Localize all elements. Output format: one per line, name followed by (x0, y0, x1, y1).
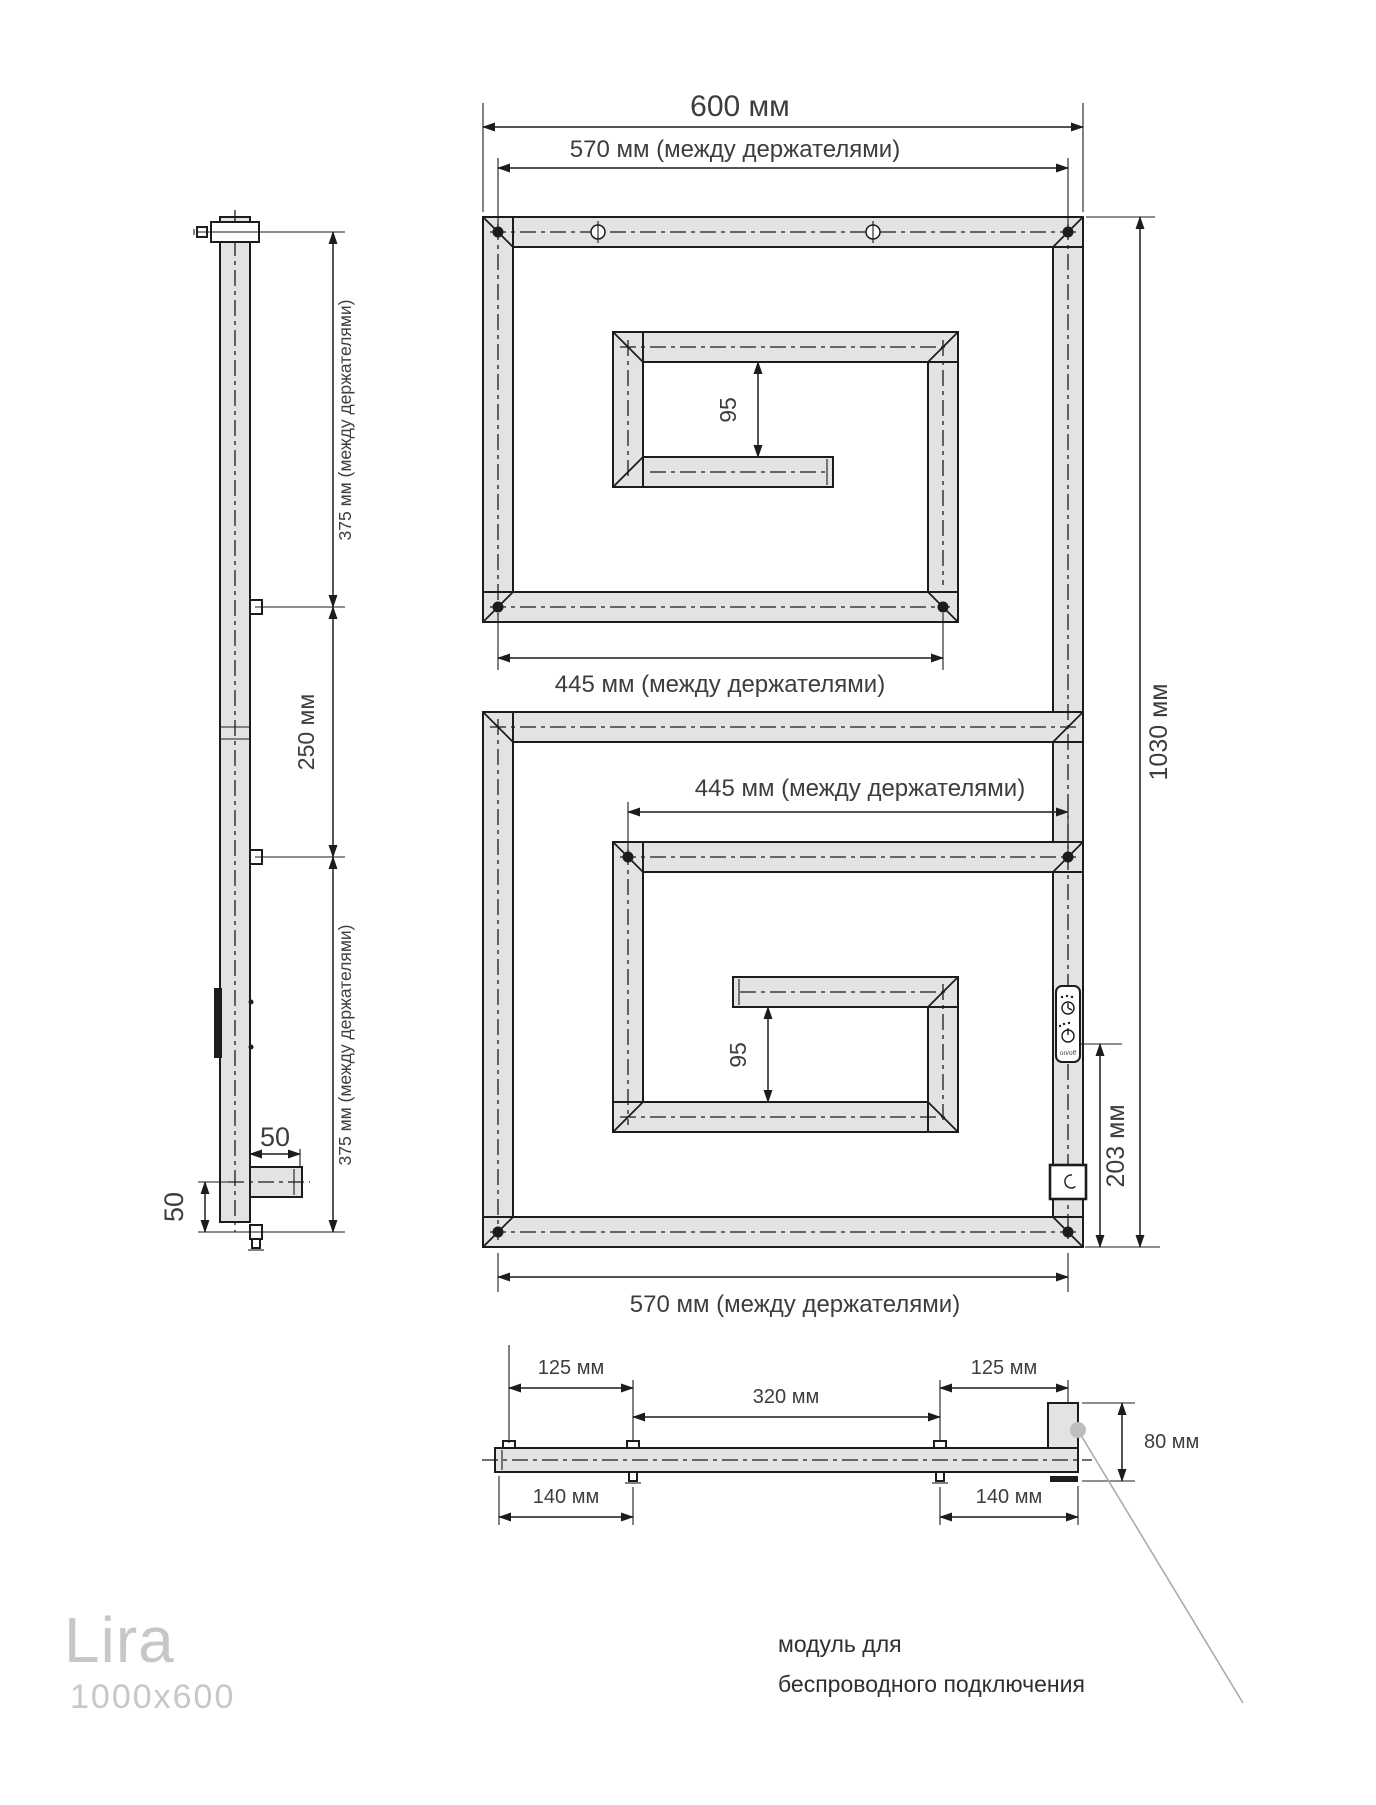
wireless-module-annotation: модуль для беспроводного подключения (778, 1437, 1243, 1703)
dim-125-left: 125 мм (509, 1345, 633, 1443)
dim-445-upper-label: 445 мм (между держателями) (555, 671, 885, 698)
dim-125-left-label: 125 мм (538, 1357, 604, 1379)
dim-95-upper-label: 95 (715, 397, 741, 423)
front-view: on/off 600 мм 570 мм (между держателями)… (483, 90, 1173, 1318)
dim-570-top-label: 570 мм (между держателями) (570, 136, 900, 163)
dim-50-h-label: 50 (260, 1122, 290, 1152)
product-size: 1000x600 (70, 1678, 235, 1716)
dim-375-upper-label: 375 мм (между держателями) (335, 300, 355, 541)
dim-gap-95-upper: 95 (715, 362, 758, 457)
dim-320-label: 320 мм (753, 1386, 819, 1408)
product-logo: Lira 1000x600 (64, 1604, 235, 1716)
dim-375-lower-label: 375 мм (между держателями) (335, 925, 355, 1166)
dim-50-horizontal: 50 (250, 1122, 300, 1167)
dim-140-left-label: 140 мм (533, 1486, 599, 1508)
product-model: Lira (64, 1604, 175, 1676)
dim-125-right-label: 125 мм (971, 1357, 1037, 1379)
dim-module-203: 203 мм (1080, 1044, 1160, 1247)
side-view: 375 мм (между держателями) 250 мм 375 мм… (159, 210, 355, 1250)
dim-600-label: 600 мм (690, 90, 790, 123)
dim-upper-holders-445: 445 мм (между держателями) (498, 613, 943, 698)
dim-375-upper: 375 мм (между держателями) (333, 232, 355, 607)
wireless-junction-box (1050, 1165, 1086, 1199)
dim-bottom-holders-570: 570 мм (между держателями) (498, 1253, 1068, 1318)
dim-80-depth: 80 мм (1082, 1403, 1199, 1481)
dim-250-label: 250 мм (293, 694, 319, 770)
dim-80-label: 80 мм (1144, 1431, 1199, 1453)
dim-1030-label: 1030 мм (1145, 684, 1173, 781)
dim-gap-95-lower: 95 (725, 1007, 768, 1102)
annotation-leader-line (1082, 1437, 1243, 1703)
side-mid-bracket-1 (250, 600, 345, 614)
dim-375-lower: 375 мм (между держателями) (333, 857, 355, 1232)
annotation-line2: беспроводного подключения (778, 1671, 1085, 1697)
dim-95-lower-label: 95 (725, 1042, 751, 1068)
dim-140-left: 140 мм (499, 1476, 633, 1525)
onoff-label: on/off (1060, 1050, 1076, 1057)
dim-height-1030: 1030 мм (1086, 217, 1173, 1247)
dim-140-right-label: 140 мм (976, 1486, 1042, 1508)
dim-203-label: 203 мм (1102, 1104, 1130, 1187)
dim-320-center: 320 мм (633, 1386, 940, 1417)
module-callout-dot (1070, 1422, 1086, 1438)
annotation-line1: модуль для (778, 1631, 902, 1657)
technical-drawing: on/off 600 мм 570 мм (между держателями)… (0, 0, 1376, 1800)
dim-570-bottom-label: 570 мм (между держателями) (630, 1291, 960, 1318)
dim-50-v-label: 50 (159, 1192, 189, 1222)
top-view: 125 мм 320 мм 125 мм 140 мм 140 мм (482, 1345, 1199, 1525)
dim-445-lower-label: 445 мм (между держателями) (695, 775, 1025, 802)
control-module: on/off (1056, 986, 1080, 1062)
dim-140-right: 140 мм (940, 1486, 1078, 1525)
side-top-bracket (194, 222, 345, 242)
side-mid-bracket-2 (250, 850, 345, 864)
side-bottom-bracket (248, 1225, 345, 1250)
dim-lower-holders-445: 445 мм (между держателями) (628, 775, 1068, 852)
dim-top-holders-570: 570 мм (между держателями) (498, 136, 1068, 226)
dim-250-middle: 250 мм (293, 607, 333, 857)
drawing-page: on/off 600 мм 570 мм (между держателями)… (0, 0, 1376, 1800)
